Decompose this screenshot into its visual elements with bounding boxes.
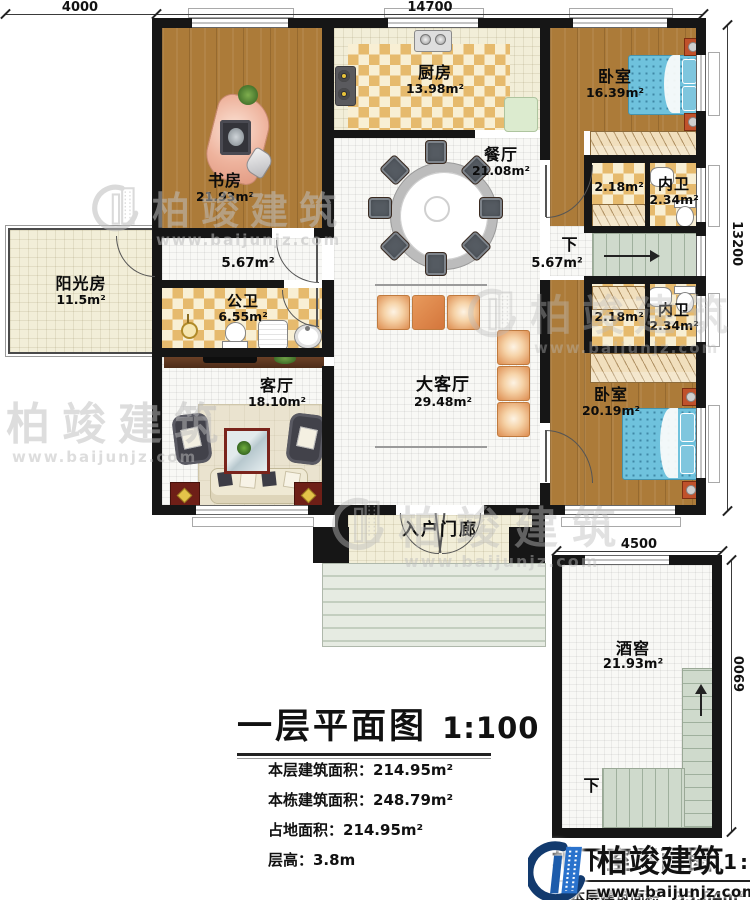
coffee-table-plant <box>237 441 251 455</box>
window <box>573 18 667 28</box>
washing-machine <box>258 320 288 350</box>
window <box>388 18 478 28</box>
info-line: 层高：3.8m <box>268 849 453 870</box>
kitchen-faucet <box>420 34 431 45</box>
bed2-pillow <box>680 413 695 442</box>
room-label-bath1: 内卫 2.34m² <box>646 176 702 206</box>
floor-cushion <box>497 330 530 365</box>
floor-cushion <box>412 295 445 330</box>
info-line: 本层建筑面积：214.95m² <box>268 759 453 780</box>
pubbath-faucet <box>305 326 310 331</box>
pubbath-toilet-bowl <box>225 322 246 343</box>
wall <box>584 155 706 163</box>
brand-url: www.baijunjz.com <box>597 883 750 900</box>
wardrobe <box>590 353 698 383</box>
room-label-bedroom2: 卧室 20.19m² <box>556 386 666 417</box>
area-label-closet1: 2.18m² <box>590 180 648 194</box>
window-sill <box>569 8 673 18</box>
plan-title-block: 一层平面图 1:100 <box>237 698 537 759</box>
window <box>696 236 706 276</box>
plan-title: 一层平面图 <box>237 707 427 747</box>
closet1-shelf <box>592 204 646 227</box>
wall <box>152 348 334 357</box>
brand-name: 柏竣建筑 <box>597 836 750 881</box>
door-leaf <box>545 430 547 482</box>
bed2-pillow <box>680 445 695 474</box>
window-sill <box>708 405 720 483</box>
area-label-hallway: 5.67m² <box>210 256 286 271</box>
wall <box>584 276 706 284</box>
window-sill <box>708 165 720 227</box>
dining-chair <box>368 197 392 219</box>
floor-cushion <box>377 295 410 330</box>
study-monitor-screen <box>228 128 244 146</box>
floor-cushion <box>447 295 480 330</box>
dimension-label-4500: 4500 <box>609 537 669 552</box>
brand-logo-icon <box>92 182 144 234</box>
dimension-label-14700: 14700 <box>400 0 460 15</box>
window-sill <box>708 52 720 116</box>
window <box>696 408 706 478</box>
brand-logo-block: 柏竣建筑 www.baijunjz.com <box>528 836 750 900</box>
wall <box>540 28 550 160</box>
dining-table-center <box>424 196 450 222</box>
window-sill <box>708 293 720 347</box>
window <box>196 505 308 515</box>
stairs-down-label: 下 <box>556 236 584 254</box>
plan-scale: 1:100 <box>442 711 539 745</box>
room-label-bath2: 内卫 2.34m² <box>646 302 702 332</box>
dining-chair <box>479 197 503 219</box>
room-label-living: 客厅 18.10m² <box>222 377 332 408</box>
floor-cushion <box>497 366 530 401</box>
brand-logo-icon <box>528 836 591 900</box>
wardrobe <box>590 131 698 157</box>
wall <box>552 555 562 838</box>
window-sill <box>561 517 681 527</box>
wall <box>484 505 532 515</box>
room-label-dining: 餐厅 21.08m² <box>446 146 556 177</box>
window-sill <box>192 517 314 527</box>
room-label-porch: 入户门廊 <box>385 521 495 540</box>
room-label-public-bath: 公卫 6.55m² <box>188 293 298 323</box>
floor-cushion <box>497 402 530 437</box>
room-label-study: 书房 21.93m² <box>170 172 280 203</box>
porch-column <box>313 527 349 563</box>
armchair-pillow <box>180 426 202 449</box>
room-label-kitchen: 厨房 13.98m² <box>380 64 490 95</box>
wall <box>540 483 550 515</box>
bed1-pillow <box>682 86 697 111</box>
wall <box>322 280 334 350</box>
title-underline <box>237 753 491 756</box>
wall <box>314 228 334 238</box>
cellar-down-label: 下 <box>578 777 606 795</box>
fridge <box>504 97 538 132</box>
area-label-stairs: 5.67m² <box>528 257 586 271</box>
bath1-toilet-bowl <box>676 206 694 227</box>
dimension-label-4000: 4000 <box>50 0 110 15</box>
wall <box>348 505 396 515</box>
dining-chair <box>425 140 447 164</box>
cellar-stairs-line <box>700 692 702 716</box>
door-leaf <box>316 238 318 282</box>
dining-chair <box>425 252 447 276</box>
stairs-arrow-icon <box>650 250 660 262</box>
bed2-blanket <box>660 408 678 478</box>
floor-drain <box>181 322 198 339</box>
entry-steps <box>322 563 546 647</box>
cellar-stairs-landing <box>602 768 685 828</box>
room-label-bedroom1: 卧室 16.39m² <box>560 68 670 99</box>
beam-line <box>375 284 487 286</box>
wall <box>152 228 272 238</box>
beam-line <box>375 446 487 448</box>
info-line: 占地面积：214.95m² <box>268 819 453 840</box>
kitchen-faucet <box>435 34 446 45</box>
closet2-shelf <box>592 286 646 310</box>
study-plant <box>238 85 258 105</box>
wall <box>584 226 706 233</box>
room-label-greathall: 大客厅 29.48m² <box>388 376 498 408</box>
dimension-label-13200: 13200 <box>729 208 744 280</box>
room-label-sunroom: 阳光房 11.5m² <box>26 275 136 306</box>
wall <box>584 346 706 353</box>
window <box>696 55 706 111</box>
wall <box>162 280 284 288</box>
dimension-line-cellar-right <box>731 560 732 832</box>
info-line: 本栋建筑面积：248.79m² <box>268 789 453 810</box>
bed1-pillow <box>682 59 697 84</box>
floorplan-canvas: 书房 21.93m² 厨房 13.98m² 卧室 16.39m² 餐厅 21.0… <box>0 0 750 900</box>
window <box>192 18 288 28</box>
cellar-stairs-arrow-icon <box>695 684 707 694</box>
dimension-label-6900: 6900 <box>733 642 748 706</box>
plan-info-list: 本层建筑面积：214.95m² 本栋建筑面积：248.79m² 占地面积：214… <box>268 759 453 870</box>
window-sill <box>188 8 294 18</box>
dimension-line-right <box>727 25 728 511</box>
area-label-closet2: 2.18m² <box>590 310 648 324</box>
door-leaf <box>316 288 318 326</box>
stairs-direction-line <box>604 255 652 257</box>
wall <box>712 555 722 838</box>
porch-column <box>509 527 545 563</box>
wall <box>540 280 550 423</box>
wall <box>327 130 475 138</box>
room-label-cellar: 酒窖 21.93m² <box>578 640 688 672</box>
window <box>565 505 675 515</box>
stove-flame-dot <box>342 74 346 78</box>
window <box>585 555 669 565</box>
stove-flame-dot <box>342 92 346 96</box>
